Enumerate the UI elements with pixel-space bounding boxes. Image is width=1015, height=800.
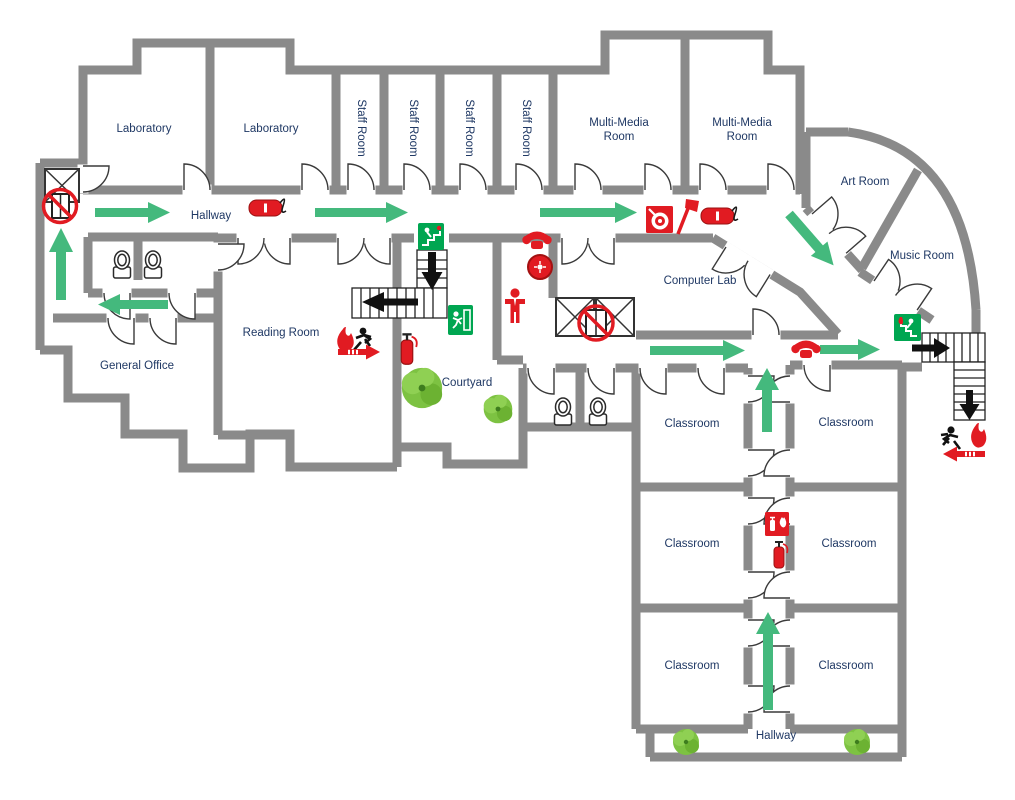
evacuation-arrow-icon <box>95 202 170 223</box>
doors <box>78 164 933 714</box>
room-label-laboratory-2: Laboratory <box>244 123 299 137</box>
room-label-hallway-bottom: Hallway <box>756 730 796 744</box>
plant-icon <box>673 729 699 755</box>
fire-extinguisher-icon <box>401 334 417 364</box>
walls <box>40 35 976 757</box>
evacuation-arrow-icon <box>540 202 637 223</box>
toilet-icon <box>590 398 607 425</box>
plant-icon <box>844 729 870 755</box>
toilet-icon <box>555 398 572 425</box>
emergency-exit-run-icon <box>941 423 986 462</box>
plant-icon <box>484 395 513 424</box>
fire-extinguisher-sign-icon <box>765 512 789 536</box>
fire-alarm-bell-icon <box>528 255 552 279</box>
room-label-classroom-6: Classroom <box>819 660 874 674</box>
room-label-staff-room-2: Staff Room <box>405 99 419 156</box>
room-label-general-office: General Office <box>100 360 174 374</box>
exit-sign-icon <box>448 305 473 335</box>
room-label-art-room: Art Room <box>841 176 890 190</box>
evacuation-arrow-icon <box>49 228 73 300</box>
no-elevator-icon <box>556 298 634 340</box>
room-label-hallway-top: Hallway <box>191 210 231 224</box>
room-label-multi-media-room-2: Multi-Media Room <box>700 117 784 145</box>
room-label-classroom-4: Classroom <box>822 538 877 552</box>
toilet-icon <box>114 251 131 278</box>
emergency-exit-run-icon <box>337 327 380 360</box>
evacuee-person-icon <box>505 288 525 323</box>
evacuation-floor-plan: Laboratory Laboratory Staff Room Staff R… <box>0 0 1015 800</box>
exit-stairs-sign-icon <box>894 314 921 341</box>
room-label-courtyard: Courtyard <box>442 377 493 391</box>
room-label-classroom-1: Classroom <box>665 418 720 432</box>
floor-plan-drawing <box>0 0 1015 800</box>
room-label-reading-room: Reading Room <box>243 327 320 341</box>
evacuation-arrow-icon <box>820 339 880 360</box>
room-label-staff-room-4: Staff Room <box>518 99 532 156</box>
room-label-staff-room-3: Staff Room <box>461 99 475 156</box>
room-label-classroom-3: Classroom <box>665 538 720 552</box>
fire-hose-reel-sign-icon <box>646 206 673 233</box>
room-label-laboratory-1: Laboratory <box>117 123 172 137</box>
room-label-multi-media-room-1: Multi-Media Room <box>577 117 661 145</box>
emergency-phone-icon <box>791 341 820 359</box>
fire-extinguisher-icon <box>774 542 788 568</box>
room-label-classroom-2: Classroom <box>819 417 874 431</box>
fire-hose-icon <box>701 207 738 224</box>
plant-icon <box>402 368 442 408</box>
no-elevator-icon <box>44 169 80 223</box>
fire-hose-icon <box>249 199 286 216</box>
room-label-staff-room-1: Staff Room <box>353 99 367 156</box>
room-label-music-room: Music Room <box>890 250 954 264</box>
room-label-computer-lab: Computer Lab <box>664 275 737 289</box>
evacuation-arrow-icon <box>315 202 408 223</box>
evacuation-arrow-icon <box>650 340 745 361</box>
room-label-classroom-5: Classroom <box>665 660 720 674</box>
exit-stairs-sign-icon <box>418 223 444 250</box>
fire-axe-icon <box>678 199 699 234</box>
toilet-icon <box>145 251 162 278</box>
